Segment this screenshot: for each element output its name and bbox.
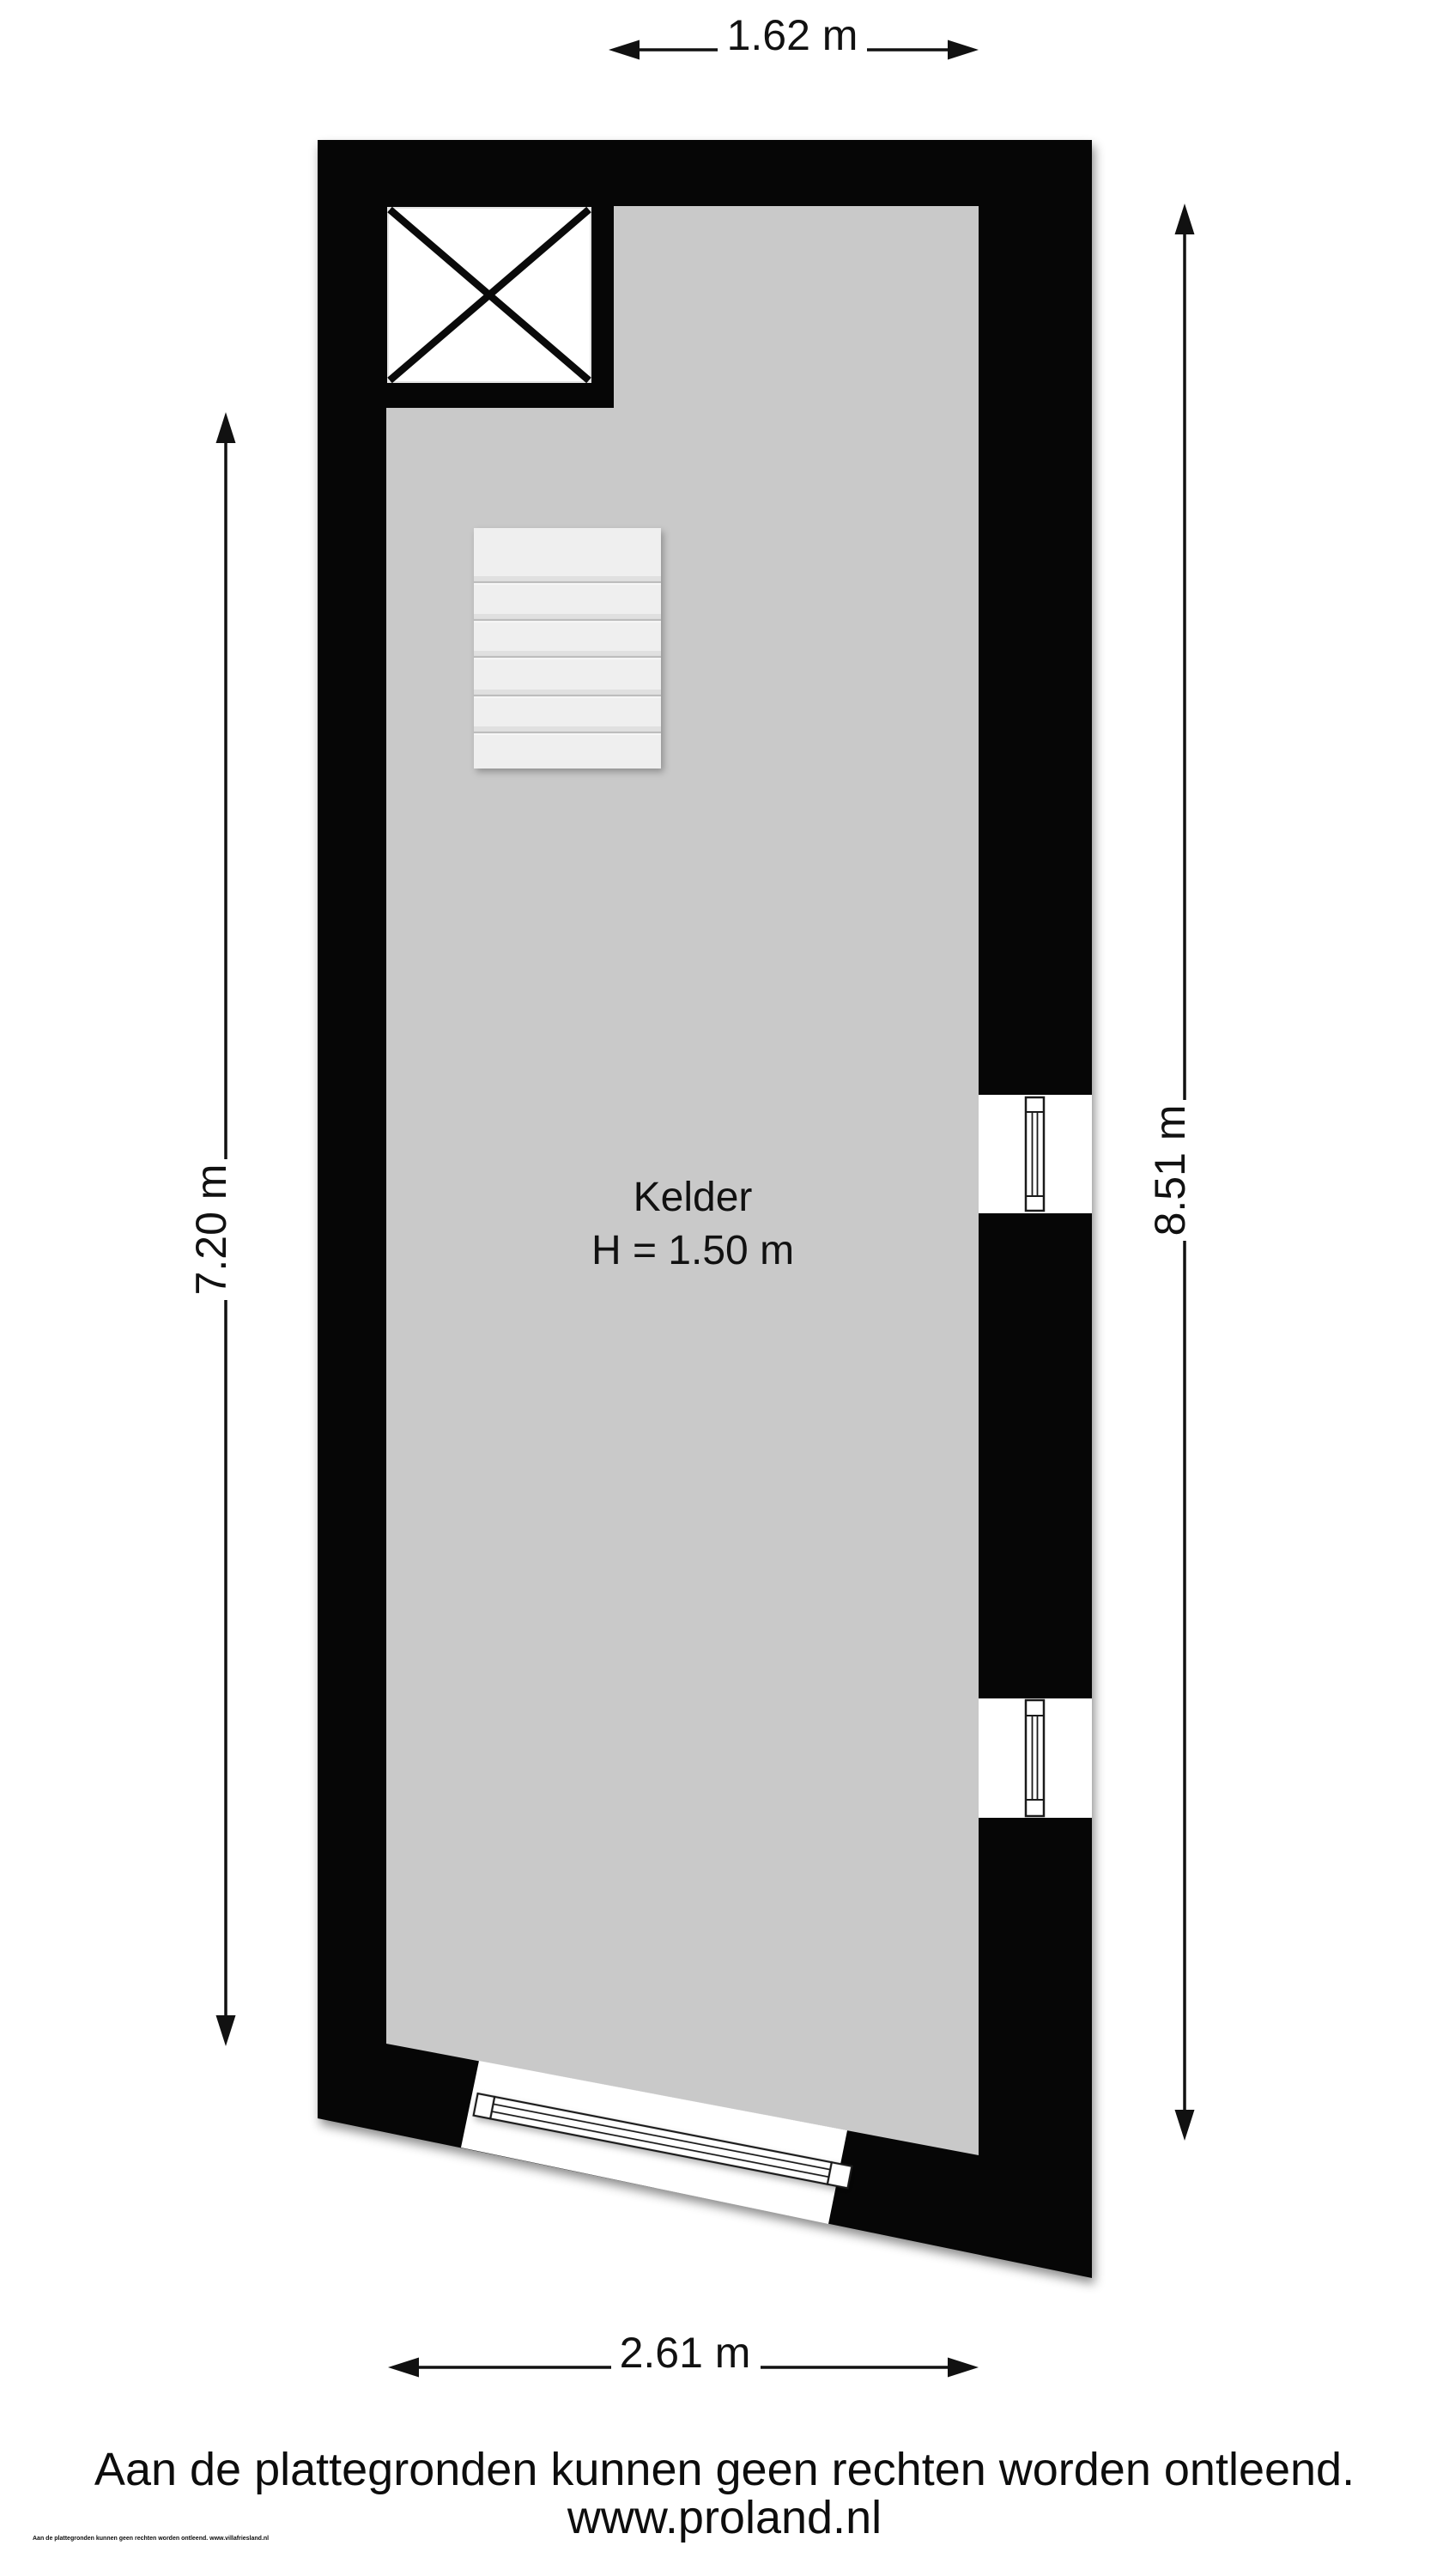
arrowhead-up-icon <box>1175 204 1195 234</box>
dimension-top-label: 1.62 m <box>727 11 858 59</box>
floorplan-page: 1.62 m 7.20 m 8.51 m 2.61 m Kelder H = 1… <box>0 0 1449 2576</box>
dimension-right-label: 8.51 m <box>1146 1105 1194 1236</box>
footer: Aan de plattegronden kunnen geen rechten… <box>33 2444 1355 2543</box>
void-box <box>388 208 591 382</box>
arrowhead-left-icon <box>388 2358 419 2378</box>
dimension-bottom-label: 2.61 m <box>620 2329 751 2377</box>
arrowhead-left-icon <box>609 40 640 60</box>
room-name: Kelder <box>634 1175 753 1220</box>
footer-website: www.proland.nl <box>567 2492 882 2543</box>
window-1 <box>1026 1097 1044 1211</box>
footer-disclaimer: Aan de plattegronden kunnen geen rechten… <box>94 2444 1355 2495</box>
staircase <box>474 528 661 769</box>
arrowhead-down-icon <box>1175 2110 1195 2141</box>
arrowhead-right-icon <box>948 40 979 60</box>
window-2 <box>1026 1700 1044 1816</box>
arrowhead-up-icon <box>216 412 236 443</box>
room-height-note: H = 1.50 m <box>591 1228 794 1273</box>
dimension-right: 8.51 m <box>1146 204 1195 2141</box>
footer-fine-print: Aan de plattegronden kunnen geen rechten… <box>33 2536 269 2542</box>
dimension-top: 1.62 m <box>609 11 979 60</box>
dimension-left: 7.20 m <box>187 412 236 2046</box>
dimension-bottom: 2.61 m <box>388 2329 979 2378</box>
arrowhead-right-icon <box>948 2358 979 2378</box>
floorplan-drawing: 1.62 m 7.20 m 8.51 m 2.61 m Kelder H = 1… <box>0 0 1449 2576</box>
dimension-left-label: 7.20 m <box>187 1164 235 1296</box>
arrowhead-down-icon <box>216 2015 236 2046</box>
